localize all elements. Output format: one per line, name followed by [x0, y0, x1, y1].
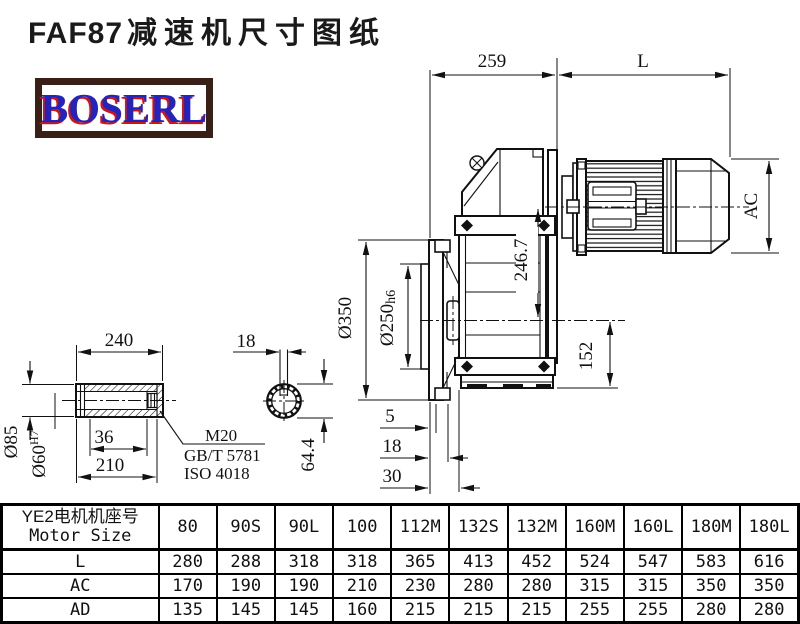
table-header-row: YE2电机机座号 Motor Size 8090S90L100112M132S1… [2, 505, 799, 550]
dim-label-64-4: 64.4 [298, 438, 319, 472]
table-cell: 190 [217, 574, 275, 598]
table-header-motor-size: YE2电机机座号 Motor Size [2, 505, 159, 550]
shaft-detail-view [62, 384, 176, 417]
note-standard-gb: GB/T 5781 [184, 446, 261, 465]
column-header: 112M [391, 505, 449, 550]
dim-label-210: 210 [96, 455, 125, 476]
column-header: 160M [566, 505, 624, 550]
dim-label-d250h6: Ø250h6 [377, 290, 399, 346]
dim-label-30: 30 [383, 466, 402, 487]
table-cell: 413 [449, 550, 507, 575]
table-cell: 315 [566, 574, 624, 598]
table-cell: 215 [391, 598, 449, 623]
dim-label-L: L [637, 51, 649, 72]
motor-size-table: YE2电机机座号 Motor Size 8090S90L100112M132S1… [0, 503, 800, 624]
table-cell: 524 [566, 550, 624, 575]
table-cell: 170 [159, 574, 217, 598]
dim-label-d60-fit: H7 [27, 430, 41, 445]
page: { "title": { "model": "FAF87", "suffix":… [0, 0, 800, 614]
column-header: 90S [217, 505, 275, 550]
shaft-section-view [263, 350, 306, 424]
row-label-AD: AD [2, 598, 159, 623]
table-cell: 318 [275, 550, 333, 575]
column-header: 180M [682, 505, 740, 550]
table-cell: 280 [682, 598, 740, 623]
table-cell: 280 [449, 574, 507, 598]
table-cell: 215 [449, 598, 507, 623]
table-cell: 145 [275, 598, 333, 623]
table-header-cn: YE2电机机座号 [3, 507, 158, 527]
table-cell: 280 [508, 574, 566, 598]
table-cell: 280 [740, 598, 798, 623]
dim-label-36: 36 [95, 427, 114, 448]
fan-band [663, 159, 676, 253]
row-label-L: L [2, 550, 159, 575]
dim-label-d250: Ø250 [377, 304, 398, 346]
table-cell: 190 [275, 574, 333, 598]
table-cell: 215 [508, 598, 566, 623]
table-cell: 255 [624, 598, 682, 623]
column-header: 180L [740, 505, 798, 550]
table-cell: 315 [624, 574, 682, 598]
fan-cowl [676, 159, 729, 253]
column-header: 80 [159, 505, 217, 550]
dim-label-240: 240 [105, 330, 134, 351]
dim-label-d60H7: Ø60H7 [27, 430, 50, 477]
motor-nameplate [588, 182, 636, 230]
table-cell: 145 [217, 598, 275, 623]
table-cell: 350 [682, 574, 740, 598]
note-thread: M20 [205, 426, 237, 445]
table-data-row: L 280288318318365413452524547583616 [2, 550, 799, 575]
dim-label-246-7: 246.7 [511, 239, 532, 282]
motor-mounting-plate [548, 150, 557, 363]
screw-symbol [470, 156, 484, 170]
table-cell: 452 [508, 550, 566, 575]
column-header: 100 [333, 505, 391, 550]
dim-label-AC: AC [741, 193, 762, 219]
dim-label-259: 259 [478, 51, 507, 72]
dim-label-152: 152 [576, 342, 597, 371]
table-cell: 210 [333, 574, 391, 598]
column-header: 132M [508, 505, 566, 550]
table-cell: 583 [682, 550, 740, 575]
table-cell: 616 [740, 550, 798, 575]
dim-label-d250-fit: h6 [384, 290, 399, 304]
dim-label-5: 5 [385, 406, 395, 427]
dim-label-d350: Ø350 [335, 297, 356, 339]
table-cell: 280 [159, 550, 217, 575]
flange-spigot [421, 264, 429, 369]
table-cell: 288 [217, 550, 275, 575]
dim-label-18-key: 18 [237, 331, 256, 352]
dim-label-18-offset: 18 [383, 436, 402, 457]
column-header: 160L [624, 505, 682, 550]
table-cell: 230 [391, 574, 449, 598]
table-cell: 135 [159, 598, 217, 623]
table-cell: 547 [624, 550, 682, 575]
table-data-row: AC 170190190210230280280315315350350 [2, 574, 799, 598]
table-data-row: AD 135145145160215215215255255280280 [2, 598, 799, 623]
table-cell: 318 [333, 550, 391, 575]
table-header-en: Motor Size [3, 527, 158, 547]
table-cell: 350 [740, 574, 798, 598]
row-label-AC: AC [2, 574, 159, 598]
column-header: 90L [275, 505, 333, 550]
column-header: 132S [449, 505, 507, 550]
table-cell: 160 [333, 598, 391, 623]
note-standard-iso: ISO 4018 [184, 464, 250, 483]
dim-label-d85: Ø85 [1, 426, 22, 459]
dim-label-d60: Ø60 [29, 445, 50, 478]
table-cell: 255 [566, 598, 624, 623]
table-cell: 365 [391, 550, 449, 575]
